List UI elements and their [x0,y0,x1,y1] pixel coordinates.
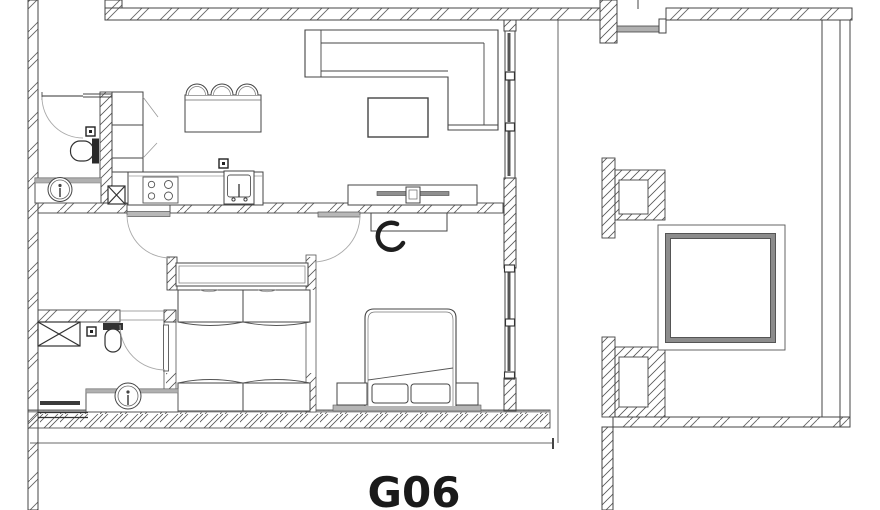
wall-bath2-top [38,310,120,322]
structural-column-lower-icon [602,337,665,417]
window-pier-bottom [504,378,516,411]
corridor-bottom-wall [613,417,850,427]
top-wall-left [105,8,600,20]
floor-plan-drawing: G06 [0,0,880,510]
kitchen [108,84,263,205]
bottom-wall-band [28,410,550,428]
pillow-icon [372,384,408,403]
door-hall-icon [127,212,170,259]
bedroom-1 [176,263,310,411]
top-wall-corner [105,0,122,8]
bedroom-2 [333,213,481,411]
tall-cabinet-icon [112,92,158,172]
bar-stools [186,84,258,95]
single-bed-bottom-icon [178,380,310,412]
toilet-icon [71,139,100,164]
coffee-table-icon [368,98,428,137]
core-corridor [602,158,785,417]
appliance-x-box-icon [108,186,125,204]
single-bed-top-icon [178,290,310,326]
entry-door-swing-icon [42,92,83,138]
tv-console-icon [348,185,477,205]
kitchen-sink-icon [224,171,254,204]
top-wall-right [666,8,852,20]
window-bedroom2-icon [505,265,516,379]
door-bedroom2-icon [313,212,360,262]
door-bathroom2-icon [120,325,169,371]
vanity-sink-icon [35,178,101,204]
elevator-shaft-icon [658,225,785,350]
wall-outlet-icon [86,127,95,136]
right-exterior-wall [840,20,850,427]
nightstand-icon [456,383,478,405]
nightstand-icon [337,383,367,405]
island-counter-icon [185,95,261,132]
wall-outlet-icon [219,159,228,168]
window-upper-icon [505,31,515,178]
wall-outlet-icon [87,327,96,336]
floor-plan-canvas: G06 [0,0,880,510]
double-bed-icon [365,309,456,406]
pillow-icon [411,384,450,403]
left-exterior-wall [28,0,38,510]
towel-rail-icon [40,401,80,405]
living-room [305,30,498,205]
window-pier [504,178,516,268]
stair-opening-icon [600,0,666,43]
headboard-shelf-icon [176,263,308,286]
structural-column-upper-icon [602,158,665,238]
bathroom-1 [35,92,101,203]
unit-label: G06 [368,468,461,510]
wall-bath2-top-stub [164,310,176,322]
shower-tray-x-icon [38,322,80,346]
corridor-left-wall-lower [602,427,613,510]
unit-right-window-wall [504,20,516,411]
